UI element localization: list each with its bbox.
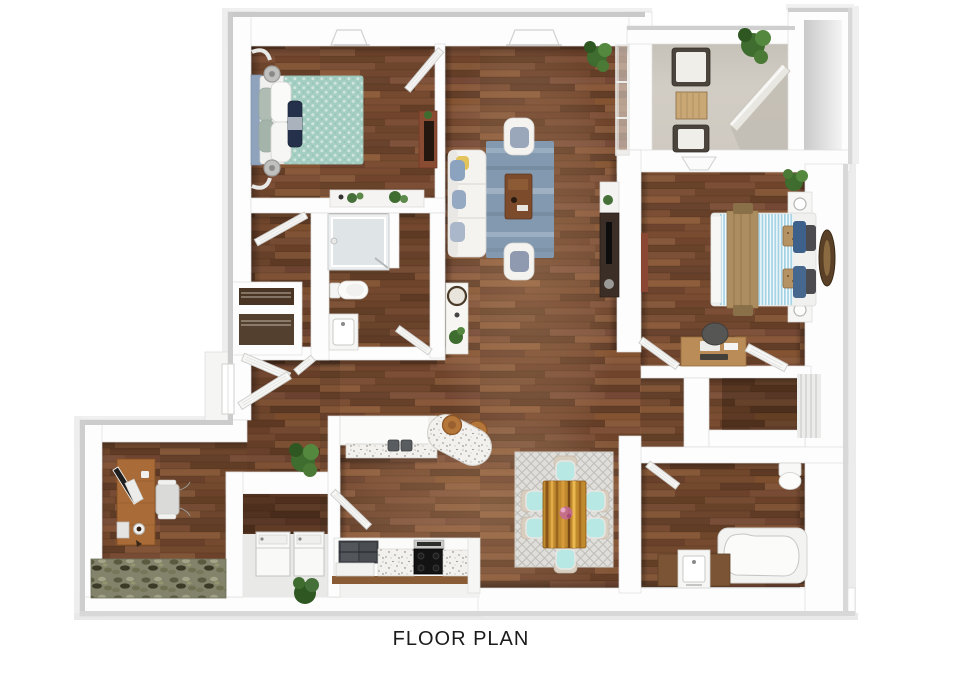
svg-text:FLOOR PLAN: FLOOR PLAN bbox=[393, 628, 530, 650]
